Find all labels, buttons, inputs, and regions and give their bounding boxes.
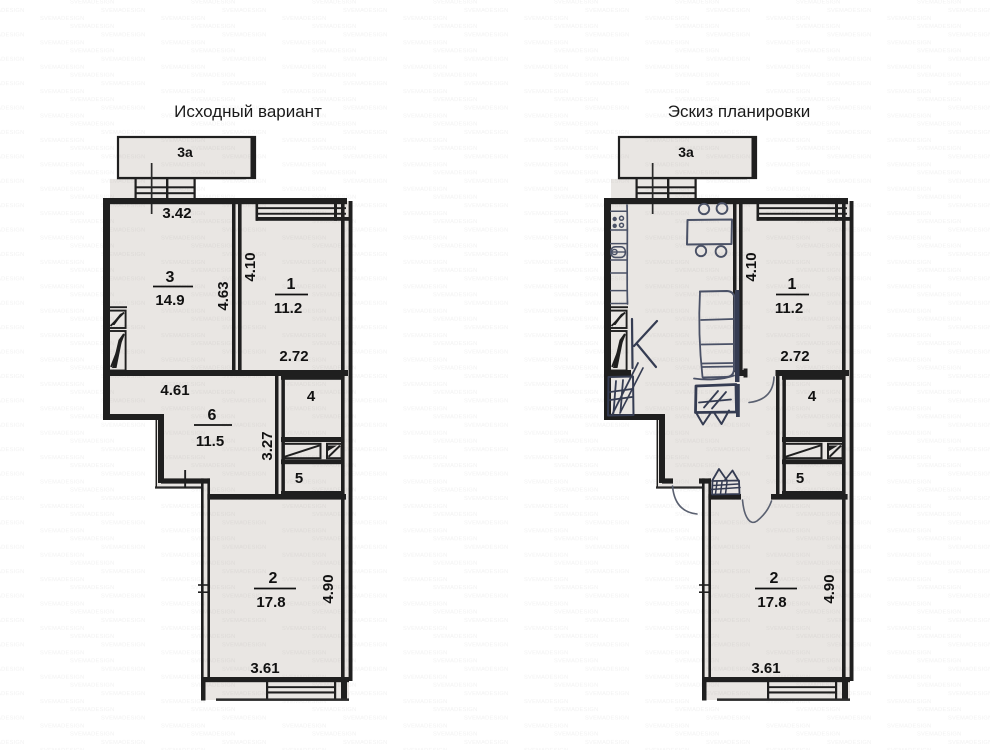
svg-text:3: 3 <box>166 269 175 286</box>
svg-text:2.72: 2.72 <box>780 348 809 365</box>
svg-text:3.61: 3.61 <box>250 660 279 677</box>
svg-text:3.27: 3.27 <box>259 431 276 460</box>
svg-text:17.8: 17.8 <box>256 594 285 611</box>
svg-text:1: 1 <box>788 276 797 293</box>
svg-text:1: 1 <box>287 276 296 293</box>
svg-text:3a: 3a <box>177 144 193 160</box>
svg-text:2: 2 <box>770 570 779 587</box>
svg-text:2.72: 2.72 <box>279 348 308 365</box>
svg-text:3a: 3a <box>678 144 694 160</box>
svg-text:4: 4 <box>808 388 817 405</box>
svg-text:4.10: 4.10 <box>743 252 760 281</box>
svg-text:Исходный вариант: Исходный вариант <box>174 102 322 121</box>
svg-text:5: 5 <box>295 470 303 487</box>
svg-text:4.61: 4.61 <box>160 382 189 399</box>
svg-text:11.5: 11.5 <box>196 433 224 450</box>
svg-text:4: 4 <box>307 388 316 405</box>
svg-text:11.2: 11.2 <box>274 300 302 317</box>
svg-text:6: 6 <box>208 407 217 424</box>
svg-text:4.90: 4.90 <box>320 574 337 603</box>
svg-text:11.2: 11.2 <box>775 300 803 317</box>
svg-text:2: 2 <box>269 570 278 587</box>
svg-text:4.10: 4.10 <box>242 252 259 281</box>
svg-text:14.9: 14.9 <box>155 292 184 309</box>
svg-text:3.61: 3.61 <box>751 660 780 677</box>
svg-text:3.42: 3.42 <box>162 205 191 222</box>
svg-text:17.8: 17.8 <box>757 594 786 611</box>
svg-text:Эскиз планировки: Эскиз планировки <box>668 102 811 121</box>
svg-text:5: 5 <box>796 470 804 487</box>
svg-text:4.90: 4.90 <box>821 574 838 603</box>
svg-text:4.63: 4.63 <box>215 281 232 310</box>
